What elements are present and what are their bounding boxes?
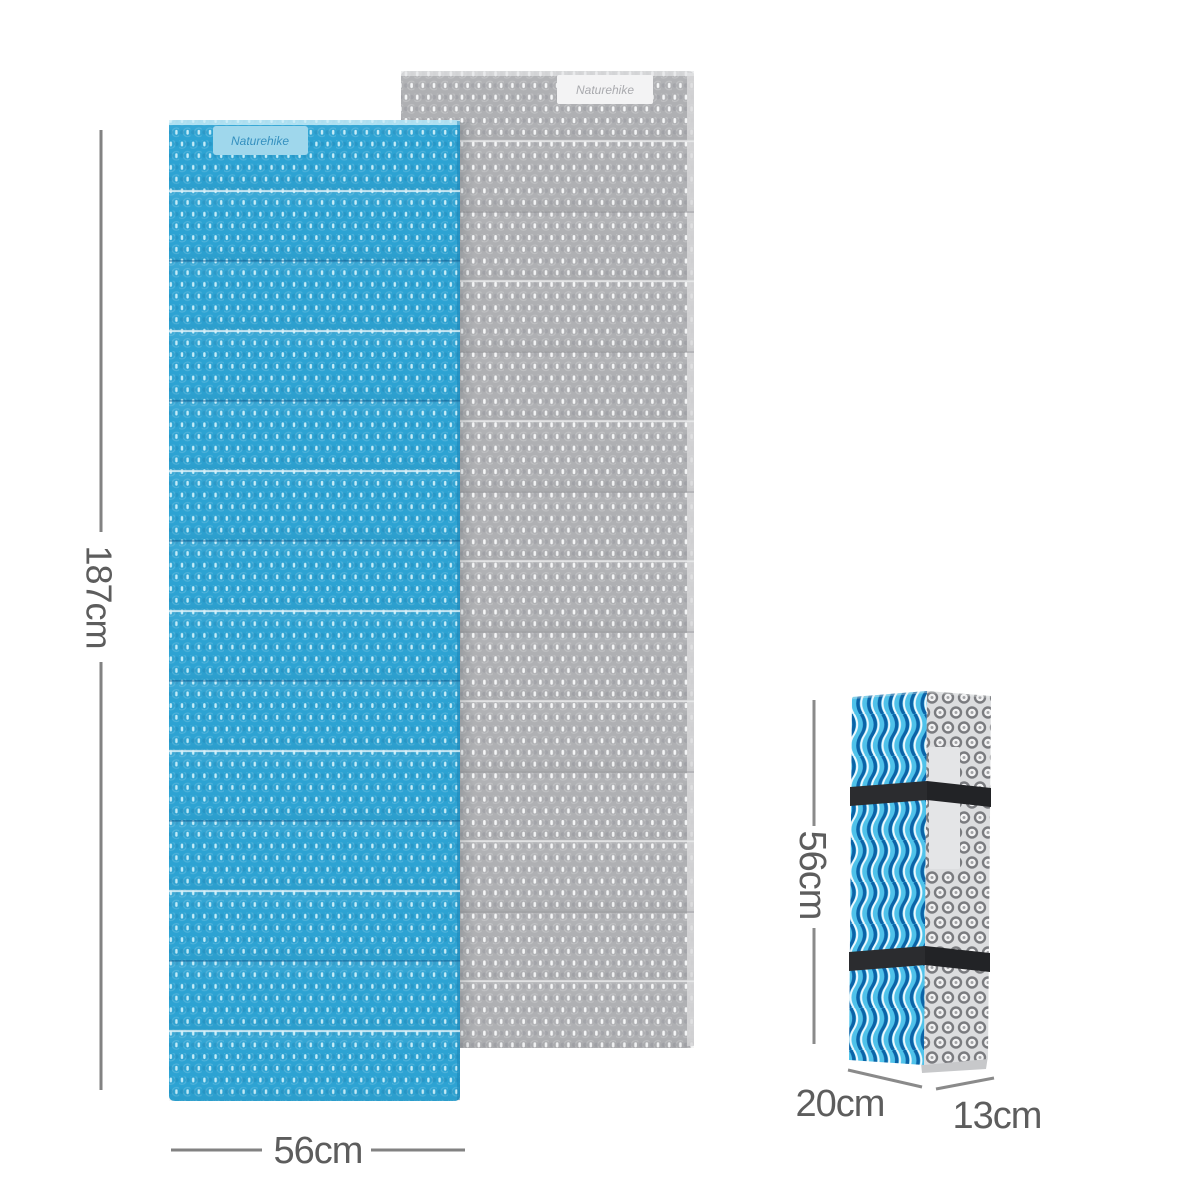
svg-text:Naturehike: Naturehike [576, 83, 634, 97]
svg-text:187cm: 187cm [79, 545, 120, 648]
svg-text:20cm: 20cm [796, 1083, 885, 1125]
svg-text:56cm: 56cm [274, 1130, 363, 1172]
svg-text:56cm: 56cm [791, 831, 833, 920]
svg-text:Naturehike: Naturehike [231, 134, 289, 148]
svg-text:13cm: 13cm [953, 1095, 1042, 1137]
